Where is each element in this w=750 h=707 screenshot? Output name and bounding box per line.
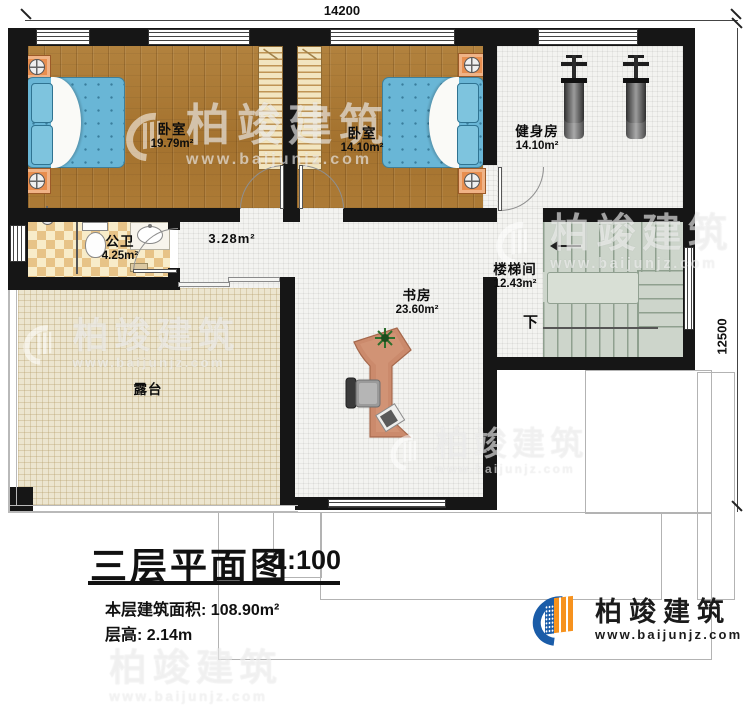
wall-terrace-study bbox=[280, 277, 295, 505]
treadmill bbox=[561, 55, 587, 139]
door-leaf bbox=[280, 165, 284, 209]
watermark-logo-icon bbox=[60, 656, 99, 700]
wall-between-bedrooms bbox=[283, 46, 297, 208]
brand-logo-icon bbox=[534, 592, 586, 648]
stair-direction-line bbox=[543, 327, 658, 329]
nightstand bbox=[458, 168, 486, 194]
room-label-bedroom-1: 卧室 19.79m² bbox=[151, 122, 194, 152]
lamp-icon bbox=[464, 173, 480, 189]
lamp-icon bbox=[464, 57, 480, 73]
pillow bbox=[457, 125, 479, 165]
brand-website: www.baijunjz.com bbox=[595, 627, 742, 642]
room-label-bathroom: 公卫 4.25m² bbox=[102, 234, 138, 264]
lamp-icon bbox=[29, 173, 45, 189]
pillow bbox=[457, 83, 479, 123]
floor-height-line: 层高: 2.14m bbox=[105, 621, 192, 645]
sliding-door-terrace bbox=[178, 282, 230, 287]
window bbox=[36, 29, 90, 45]
wall-gym-bottom bbox=[543, 208, 683, 222]
brand-name: 柏竣建筑 bbox=[595, 598, 742, 626]
roof-outline bbox=[320, 512, 662, 600]
wall-bedrooms-bottom bbox=[343, 208, 497, 222]
roof-outline bbox=[585, 370, 712, 514]
floor-plan-page: { "dimensions": { "width_mm": "14200", "… bbox=[0, 0, 750, 666]
terrace-corner-post bbox=[8, 487, 33, 512]
pillow bbox=[31, 125, 53, 165]
wall-study-right bbox=[483, 277, 497, 497]
door-leaf bbox=[299, 165, 303, 209]
roof-outline bbox=[697, 372, 735, 600]
nightstand bbox=[458, 53, 486, 77]
sink-faucet-icon bbox=[148, 224, 152, 228]
stair-steps-lower bbox=[543, 302, 637, 357]
stair-steps-return bbox=[637, 270, 683, 330]
floor-area-line: 本层建筑面积: 108.90m² bbox=[105, 596, 279, 620]
stair-arrow-head-icon bbox=[550, 241, 558, 251]
logo-building-icon bbox=[554, 596, 573, 633]
bed-sheet bbox=[429, 77, 459, 168]
wall-bathroom-bottom bbox=[8, 277, 180, 290]
shower-partition bbox=[76, 222, 78, 274]
wall-bathroom-jamb bbox=[168, 208, 180, 230]
office-chair-back bbox=[346, 378, 356, 408]
sliding-door-terrace bbox=[228, 277, 280, 282]
wardrobe bbox=[297, 46, 322, 170]
dimension-width: 14200 bbox=[312, 3, 372, 18]
stair-steps-upper bbox=[543, 222, 683, 272]
lamp-icon bbox=[29, 59, 45, 75]
title-underline bbox=[88, 581, 340, 585]
treadmill-belt bbox=[564, 83, 584, 139]
brand-logo: 柏竣建筑 www.baijunjz.com bbox=[534, 592, 742, 648]
terrace-parapet bbox=[8, 505, 298, 506]
wall-bedrooms-bottom bbox=[8, 208, 240, 222]
treadmill bbox=[623, 55, 649, 139]
bed-sheet bbox=[51, 77, 81, 168]
window bbox=[330, 29, 455, 45]
bed-bedroom-2 bbox=[382, 77, 484, 168]
terrace-parapet bbox=[8, 290, 10, 512]
dimension-depth: 12500 bbox=[715, 307, 730, 367]
door-leaf bbox=[498, 167, 502, 211]
room-label-terrace: 露台 bbox=[134, 382, 163, 398]
wall-bedroom2-gym bbox=[483, 28, 497, 165]
room-label-stairwell: 楼梯间 12.43m² bbox=[493, 262, 537, 292]
room-label-study: 书房 23.60m² bbox=[396, 288, 439, 318]
treadmill-belt bbox=[626, 83, 646, 139]
window bbox=[10, 225, 26, 262]
stair-down-label: 下 bbox=[523, 314, 539, 332]
dimension-line-top bbox=[25, 20, 738, 21]
wall-stairwell-bottom bbox=[483, 357, 695, 370]
terrace-parapet bbox=[8, 511, 298, 513]
wardrobe bbox=[258, 46, 283, 170]
window bbox=[538, 29, 638, 45]
stair-landing bbox=[547, 272, 639, 304]
room-label-bedroom-2: 卧室 14.10m² bbox=[341, 126, 384, 156]
logo-building-icon bbox=[545, 604, 554, 634]
dimension-tick bbox=[20, 8, 31, 19]
room-label-gym: 健身房 14.10m² bbox=[515, 124, 559, 154]
dimension-line-right bbox=[737, 28, 738, 512]
window bbox=[684, 247, 694, 330]
window bbox=[328, 499, 446, 508]
study-desk-group bbox=[340, 320, 420, 445]
toilet-tank bbox=[82, 222, 108, 231]
stair-arrow-line bbox=[557, 245, 581, 247]
bed-bedroom-1 bbox=[26, 77, 125, 168]
pillow bbox=[31, 83, 53, 123]
room-label-hallway-area: 3.28m² bbox=[208, 231, 255, 247]
plan-scale: 1:100 bbox=[272, 545, 341, 576]
window bbox=[148, 29, 250, 45]
terrace-parapet bbox=[16, 290, 17, 505]
door-leaf bbox=[133, 269, 177, 273]
wall-bedrooms-bottom bbox=[283, 208, 300, 222]
